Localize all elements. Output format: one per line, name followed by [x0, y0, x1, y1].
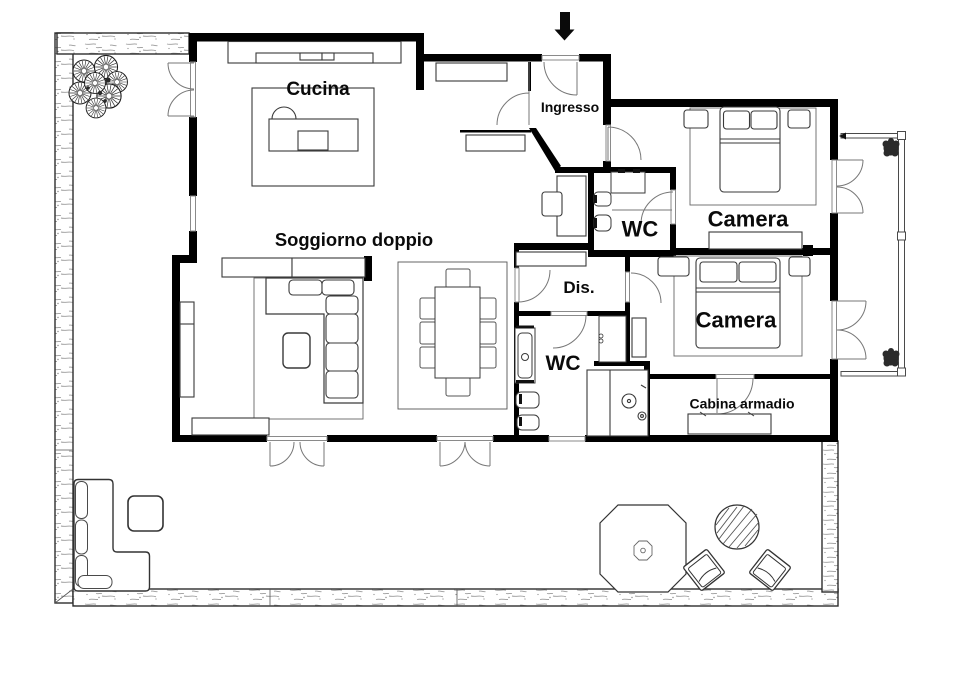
svg-text:Cucina: Cucina	[286, 79, 350, 100]
svg-text:Camera: Camera	[696, 308, 777, 333]
svg-text:Dis.: Dis.	[563, 278, 594, 297]
svg-text:Soggiorno doppio: Soggiorno doppio	[275, 229, 433, 250]
svg-text:WC: WC	[622, 217, 659, 242]
svg-text:Cabina armadio: Cabina armadio	[689, 396, 794, 412]
svg-text:Camera: Camera	[708, 207, 789, 232]
svg-text:Ingresso: Ingresso	[541, 99, 599, 115]
svg-text:WC: WC	[546, 352, 581, 375]
